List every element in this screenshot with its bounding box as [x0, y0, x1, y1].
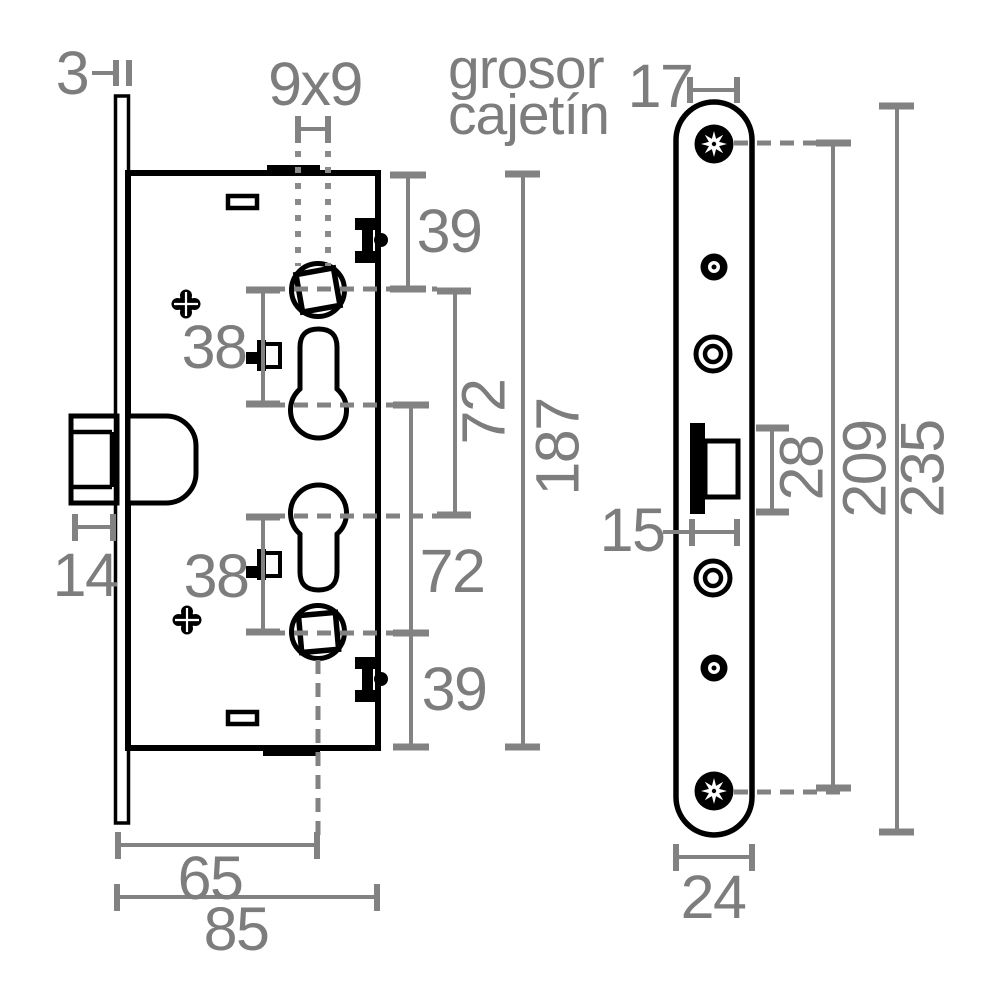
case-slot-top	[228, 196, 257, 208]
keyhole-lower	[291, 485, 347, 590]
side-view	[71, 96, 388, 823]
torx-screw-top	[695, 125, 734, 164]
dim-label-plate-length: 235	[888, 420, 956, 517]
latch-body	[128, 416, 196, 503]
case-bottom-boss	[263, 746, 320, 756]
dim-label-latch-projection: 14	[53, 541, 118, 609]
dim-label-spindle-to-cylinder-upper: 38	[182, 313, 247, 381]
dim-label-case-height: 187	[523, 398, 591, 495]
dim-label-edge-to-screw: 17	[628, 52, 693, 120]
case-slot-bottom	[228, 712, 257, 724]
dim-label-latch-width: 15	[600, 496, 665, 564]
dim-label-lower-axis-span: 72	[420, 537, 485, 605]
dim-label-upper-axis-span: 72	[449, 380, 517, 445]
latch-front-box	[705, 441, 738, 497]
dim-label-plate-width: 24	[681, 863, 746, 931]
dim-label-spindle-to-bottom: 39	[422, 655, 487, 723]
case-top-boss	[267, 165, 320, 175]
fixing-hole-lower	[701, 655, 728, 682]
fixing-hole-upper	[701, 254, 728, 281]
dim-label-spindle-square: 9x9	[268, 50, 362, 118]
dim-label-top-to-spindle: 39	[417, 197, 482, 265]
torx-screw-bottom	[695, 772, 734, 811]
keyhole-upper	[291, 329, 347, 438]
cylinder-hole-upper	[696, 337, 730, 371]
lock-technical-drawing: 3 9x9 39 38 72 187 38 72 39 14 65 85 gro…	[0, 0, 1000, 1000]
drawing-canvas: 3 9x9 39 38 72 187 38 72 39 14 65 85 gro…	[0, 0, 1000, 1000]
dim-label-cylinder-to-spindle-lower: 38	[184, 542, 249, 610]
note-cajetin: cajetín	[448, 83, 609, 147]
dim-label-faceplate-thickness: 3	[56, 39, 88, 107]
front-view	[676, 102, 752, 835]
cylinder-hole-lower	[696, 561, 730, 595]
dim-label-case-depth: 85	[204, 895, 269, 963]
dim-label-latch-height: 28	[767, 436, 835, 501]
